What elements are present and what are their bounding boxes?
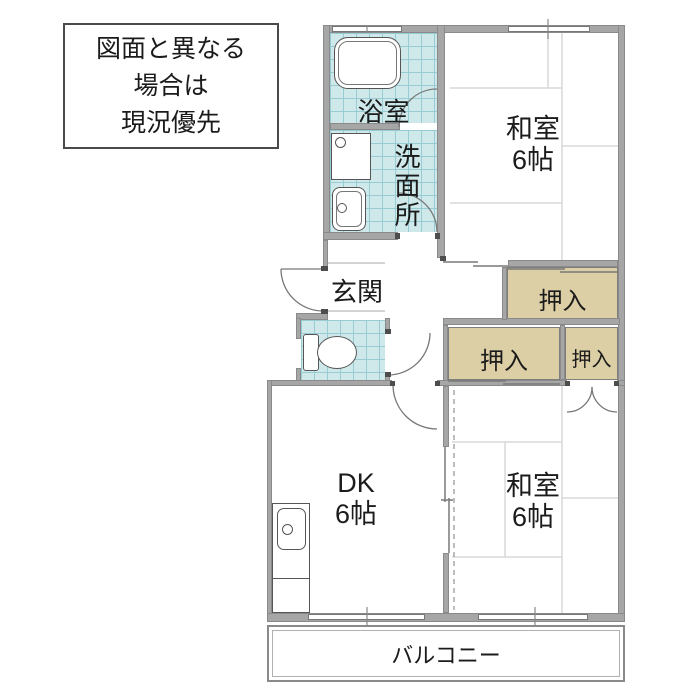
faucet-icon (335, 137, 346, 148)
bathroom-label: 浴室 (330, 92, 437, 129)
window (332, 26, 402, 32)
closet-mid-left-label: 押入 (448, 341, 560, 376)
room-name: 和室 (483, 471, 583, 502)
wall (443, 553, 449, 613)
window (308, 614, 425, 620)
dk-door-arc (393, 385, 437, 429)
room-name: DK (306, 468, 406, 499)
washing-machine-pan (331, 133, 371, 180)
wall (385, 318, 390, 332)
balcony: バルコニー (267, 625, 625, 682)
wall (437, 380, 567, 386)
window (508, 26, 590, 32)
wall (323, 25, 330, 240)
wall (323, 240, 328, 268)
washroom-label: 洗面所 (388, 136, 425, 236)
notice-line: 場合は (65, 68, 277, 105)
closet-top-label: 押入 (507, 281, 618, 316)
kitchen-sink (272, 503, 310, 613)
closet-mid-right-label: 押入 (565, 343, 618, 372)
wall (437, 25, 445, 258)
wall (443, 318, 620, 325)
counter-divider (273, 578, 309, 579)
toilet-bowl (317, 336, 357, 369)
wall (267, 380, 392, 386)
notice-box: 図面と異なる 場合は 現況優先 (63, 23, 279, 149)
washitsu-bottom-label: 和室 6帖 (483, 471, 583, 533)
room-size: 6帖 (483, 145, 583, 176)
wall (617, 380, 625, 386)
wall (323, 232, 398, 240)
wall (443, 386, 449, 447)
hall-to-top-room-slider (443, 262, 508, 266)
toilet-window (298, 339, 300, 368)
notice-line: 現況優先 (65, 105, 277, 142)
floor-plan: 図面と異なる 場合は 現況優先 (0, 0, 700, 700)
faucet-icon (337, 203, 347, 213)
room-name: 和室 (483, 114, 583, 145)
washbasin (332, 187, 366, 231)
room-size: 6帖 (483, 502, 583, 533)
wall (508, 260, 618, 267)
dk-washitsu-slider (441, 447, 453, 553)
balcony-label: バルコニー (272, 630, 620, 677)
notice-line: 図面と異なる (65, 31, 277, 68)
bathtub (334, 37, 401, 89)
faucet-icon (282, 524, 293, 535)
washitsu-top-label: 和室 6帖 (483, 114, 583, 176)
genkan-label: 玄関 (323, 272, 391, 309)
closet-double-door-right-arc (592, 387, 617, 412)
room-size: 6帖 (306, 499, 406, 530)
window (478, 614, 588, 620)
bathtub-inner (338, 41, 397, 85)
wall (296, 318, 301, 339)
dk-label: DK 6帖 (306, 468, 406, 530)
closet-double-door-left-arc (567, 387, 592, 412)
toilet-door-arc (388, 333, 430, 375)
entrance-door-arc (281, 269, 323, 311)
